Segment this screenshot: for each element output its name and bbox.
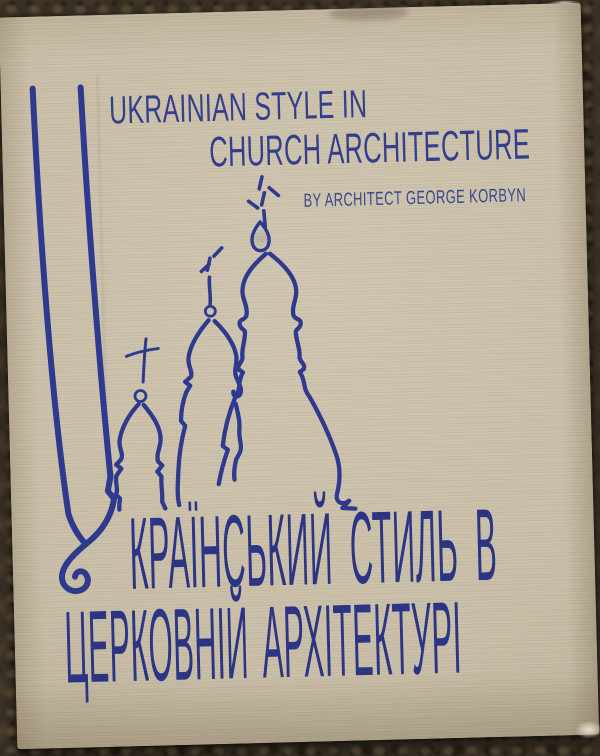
big-dome-cross-dash-3 <box>249 201 258 208</box>
middle-dome-stem <box>209 277 210 304</box>
book-cover: UKRAINIAN STYLE IN CHURCH ARCHITECTURE B… <box>0 3 599 749</box>
left-dome-cross-bar <box>126 349 158 357</box>
big-dome-cross-dash-4 <box>269 187 278 195</box>
middle-dome-lower-right <box>232 404 241 480</box>
middle-dome-cross-dash-2 <box>214 248 222 256</box>
middle-dome-finial-loop <box>205 306 215 316</box>
big-dome-cross-dash-1 <box>259 177 262 189</box>
middle-dome-outline-left <box>173 320 213 505</box>
big-dome-outline-right <box>270 252 355 511</box>
left-dome-outline-left <box>114 404 142 510</box>
left-dome-finial-loop <box>135 390 146 401</box>
giant-letter-u-left-stroke <box>33 88 86 545</box>
big-dome-cross-dash-2 <box>261 193 264 205</box>
photo-of-book-cover: UKRAINIAN STYLE IN CHURCH ARCHITECTURE B… <box>0 0 600 756</box>
left-dome-outline-right <box>144 404 166 508</box>
ukrainian-title-line2: ЦЕРКОВНІЙ АРХІТЕКТУРІ <box>63 586 462 698</box>
giant-letter-u-right-stroke-and-curl <box>50 87 117 592</box>
left-dome-cross <box>142 339 147 382</box>
